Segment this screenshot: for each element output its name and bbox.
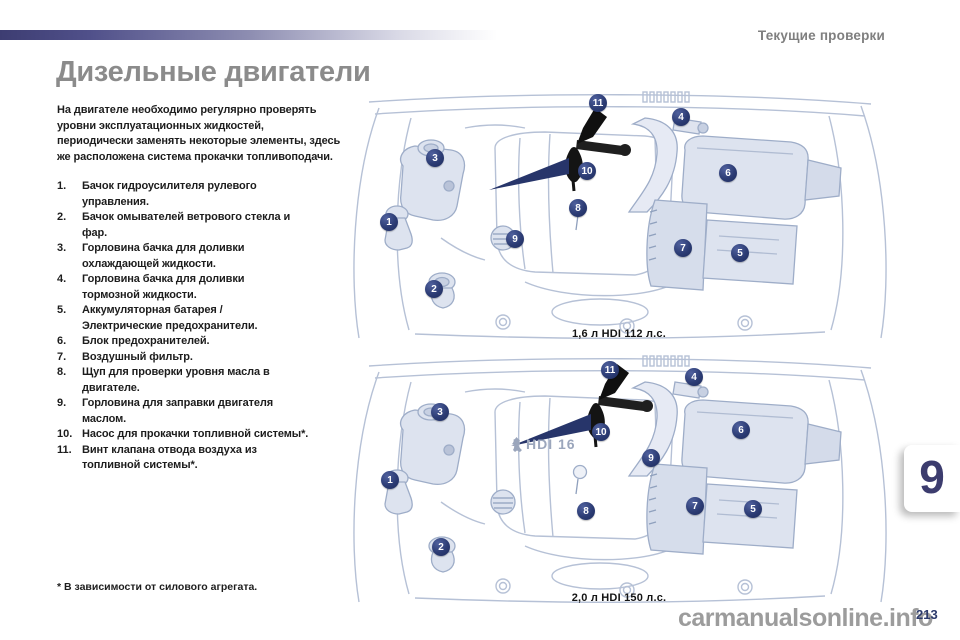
header-gradient-bar [0,30,497,40]
oil-filler-cap [491,490,515,514]
callout-9: 9 [506,230,524,248]
engine-diagram-bottom: HDI 16 2,0 л HDI 150 л.с. 1234567891011 [345,352,893,610]
callout-2: 2 [432,538,450,556]
intro-paragraph: На двигателе необходимо регулярно провер… [57,103,340,165]
engine-bay-illustration [345,352,893,604]
legend-item-number: 1. [57,179,82,195]
legend-item-text: Щуп для проверки уровня масла в двигател… [82,365,270,396]
legend-list: 1.Бачок гидроусилителя рулевого управлен… [57,179,357,474]
legend-item-text: Горловина для заправки двигателя маслом. [82,396,273,427]
callout-1: 1 [381,471,399,489]
callout-8: 8 [569,199,587,217]
legend-item: 6.Блок предохранителей. [57,334,357,350]
legend-item-number: 2. [57,210,82,226]
callout-5: 5 [731,244,749,262]
chapter-tab: 9 [904,445,960,512]
legend-item-number: 4. [57,272,82,288]
page-number: 213 [916,607,938,622]
legend-item: 2.Бачок омывателей ветрового стекла и фа… [57,210,357,241]
engine-cover-badge: HDI 16 [511,436,576,452]
callout-4: 4 [685,368,703,386]
callout-6: 6 [732,421,750,439]
callout-11: 11 [601,361,619,379]
legend-item: 8.Щуп для проверки уровня масла в двигат… [57,365,357,396]
callout-10: 10 [578,162,596,180]
legend-item: 7.Воздушный фильтр. [57,350,357,366]
legend-item-number: 5. [57,303,82,319]
engine-bay-components [385,382,841,572]
legend-item-text: Насос для прокачки топливной системы*. [82,427,308,443]
legend-item-text: Аккумуляторная батарея / Электрические п… [82,303,258,334]
callout-5: 5 [744,500,762,518]
callout-6: 6 [719,164,737,182]
legend-item-text: Бачок гидроусилителя рулевого управления… [82,179,257,210]
legend-item-text: Винт клапана отвода воздуха из топливной… [82,443,257,474]
legend-item-text: Воздушный фильтр. [82,350,193,366]
fuel-line [598,396,645,411]
legend-item: 3.Горловина бачка для доливки охлаждающе… [57,241,357,272]
callout-2: 2 [425,280,443,298]
legend-item: 10.Насос для прокачки топливной системы*… [57,427,357,443]
fuel-priming-group [489,108,631,191]
legend-item: 4.Горловина бачка для доливки тормозной … [57,272,357,303]
callout-7: 7 [674,239,692,257]
callout-7: 7 [686,497,704,515]
air-duct [629,118,677,212]
callout-10: 10 [592,423,610,441]
diagram-caption: 1,6 л HDI 112 л.с. [345,328,893,340]
legend-item: 9.Горловина для заправки двигателя масло… [57,396,357,427]
footnote: * В зависимости от силового агрегата. [57,581,257,593]
legend-item-number: 9. [57,396,82,412]
callout-3: 3 [426,149,444,167]
callout-9: 9 [642,449,660,467]
callout-3: 3 [431,403,449,421]
pointer-arrow [577,108,607,144]
chapter-number: 9 [919,454,945,500]
legend-item: 1.Бачок гидроусилителя рулевого управлен… [57,179,357,210]
legend-item-text: Горловина бачка для доливки охлаждающей … [82,241,244,272]
legend-item-text: Бачок омывателей ветрового стекла и фар. [82,210,290,241]
diagram-caption: 2,0 л HDI 150 л.с. [345,592,893,604]
legend-item-number: 10. [57,427,82,443]
engine-badge-text: HDI 16 [526,436,576,452]
legend-item-text: Блок предохранителей. [82,334,209,350]
peugeot-lion-icon [511,437,522,452]
legend-item-text: Горловина бачка для доливки тормозной жи… [82,272,244,303]
callout-8: 8 [577,502,595,520]
watermark: carmanualsonline.info [678,604,933,633]
legend-item-number: 8. [57,365,82,381]
oil-dipstick [574,466,587,479]
legend-item-number: 11. [57,443,82,459]
fuel-line [576,140,623,155]
legend-item-number: 3. [57,241,82,257]
callout-11: 11 [589,94,607,112]
fuel-priming-group [511,364,653,447]
legend-item-number: 7. [57,350,82,366]
engine-bay-illustration [345,88,893,340]
legend-item: 5.Аккумуляторная батарея / Электрические… [57,303,357,334]
washer-reservoir [401,410,465,484]
callout-1: 1 [380,213,398,231]
legend-item-number: 6. [57,334,82,350]
running-header: Текущие проверки [758,28,885,43]
legend-item: 11.Винт клапана отвода воздуха из топлив… [57,443,357,474]
page-title: Дизельные двигатели [56,56,371,89]
callout-4: 4 [672,108,690,126]
pointer-wedge [489,158,569,190]
engine-diagram-top: 1,6 л HDI 112 л.с. 1234567891011 [345,88,893,346]
